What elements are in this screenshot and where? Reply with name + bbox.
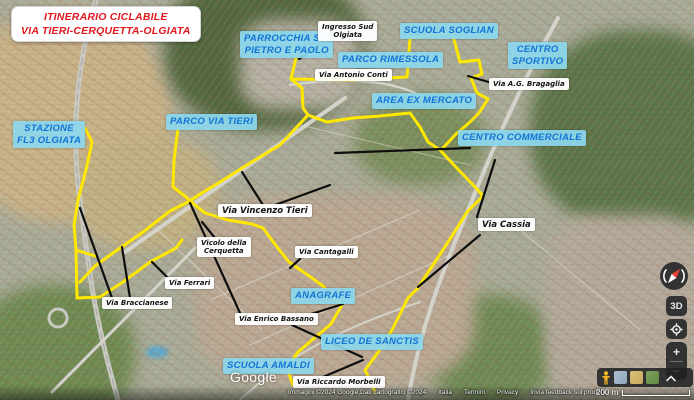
label-stazione-fl3-olgiata: STAZIONEFL3 OLGIATA (13, 121, 85, 148)
route-segment (173, 128, 190, 201)
label-parco-rimessola: PARCO RIMESSOLA (338, 52, 443, 68)
scale-bar (622, 390, 690, 396)
label-via-braccianese: Via Braccianese (102, 297, 172, 309)
label-via-antonio-conti: Via Antonio Conti (315, 69, 392, 81)
label-via-ferrari: Via Ferrari (165, 277, 214, 289)
pegman-icon[interactable] (601, 371, 611, 385)
label-parco-via-tieri: PARCO VIA TIERI (166, 114, 257, 130)
label-anagrafe: ANAGRAFE (291, 288, 355, 304)
compass-icon (660, 262, 688, 290)
layers-bar (597, 368, 693, 387)
zoom-in-button[interactable]: + (666, 343, 687, 361)
3d-button[interactable]: 3D (666, 296, 687, 316)
scale-label: 200 m (596, 388, 618, 397)
label-via-enrico-bassano: Via Enrico Bassano (235, 313, 318, 325)
label-via-ag-bragaglia: Via A.G. Bragaglia (489, 78, 569, 90)
label-centro-commerciale: CENTRO COMMERCIALE (458, 130, 586, 146)
link-italia[interactable]: Italia (438, 389, 452, 397)
label-via-vincenzo-tieri: Via Vincenzo Tieri (218, 204, 312, 217)
callout-line (275, 185, 330, 205)
label-scuola-soglian: SCUOLA SOGLIAN (400, 23, 498, 39)
google-earth-map-view: STAZIONEFL3 OLGIATAPARCO VIA TIERIPARROC… (0, 0, 694, 400)
label-via-cantagalli: Via Cantagalli (295, 246, 358, 258)
label-ingresso-sud-olgiata: Ingresso SudOlgiata (318, 21, 377, 41)
copyright-text: Immagini ©2024 Google,Dati cartografici … (288, 389, 426, 397)
itinerary-title: ITINERARIO CICLABILE VIA TIERI-CERQUETTA… (11, 6, 201, 42)
label-centro-sportivo: CENTROSPORTIVO (508, 42, 567, 69)
title-line-2: VIA TIERI-CERQUETTA-OLGIATA (21, 24, 191, 38)
label-area-ex-mercato: AREA EX MERCATO (372, 93, 476, 109)
label-via-cassia: Via Cassia (478, 218, 535, 231)
3d-label: 3D (670, 301, 682, 312)
crosshair-icon (670, 323, 683, 336)
title-line-1: ITINERARIO CICLABILE (21, 10, 191, 24)
collapse-chevron[interactable] (665, 374, 677, 382)
my-location-button[interactable] (666, 319, 687, 339)
link-privacy[interactable]: Privacy (497, 389, 518, 397)
link-termini[interactable]: Termini (464, 389, 485, 397)
layer-thumbnail-terrain[interactable] (630, 371, 643, 384)
layer-thumbnail-satellite[interactable] (646, 371, 659, 384)
callout-line (152, 262, 168, 278)
callout-line (242, 172, 263, 205)
callout-line (122, 247, 130, 298)
chevron-up-icon (665, 374, 677, 382)
label-vicolo-della-cerquetta: Vicolo dellaCerquetta (197, 237, 251, 257)
attribution-bar: Immagini ©2024 Google,Dati cartografici … (288, 389, 608, 397)
compass-control[interactable] (660, 262, 688, 290)
layer-thumbnail-map[interactable] (614, 371, 627, 384)
label-liceo-de-sanctis: LICEO DE SANCTIS (321, 334, 423, 350)
google-logo: Google (230, 369, 277, 385)
callout-line (323, 360, 363, 377)
